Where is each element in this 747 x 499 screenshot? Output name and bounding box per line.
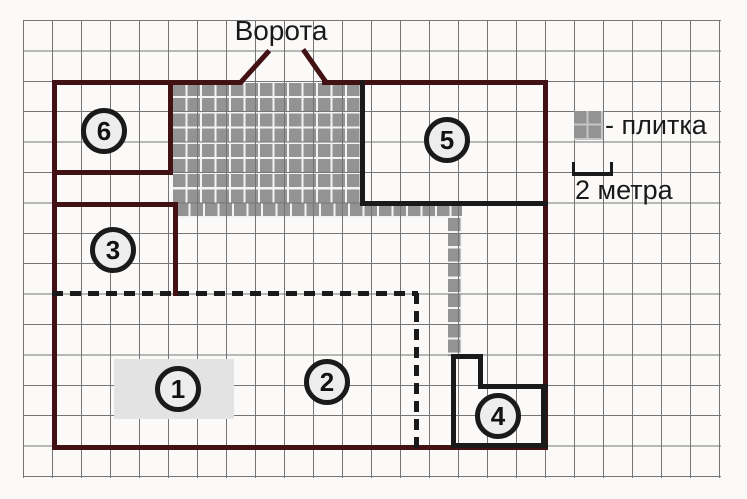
region-1-number: 1 bbox=[171, 374, 185, 405]
scale-bracket-icon bbox=[572, 162, 613, 176]
scale-label: 2 метра bbox=[575, 176, 673, 204]
region-marker-6: 6 bbox=[81, 108, 127, 154]
region-4-wall-right bbox=[541, 384, 547, 448]
region-5-number: 5 bbox=[440, 125, 454, 156]
dashed-boundary-vertical bbox=[414, 293, 419, 448]
tiled-path-vertical bbox=[448, 218, 462, 356]
legend-tile-icon bbox=[574, 111, 603, 140]
region-marker-5: 5 bbox=[424, 117, 470, 163]
region-6-wall-right bbox=[168, 80, 173, 175]
tiled-area-main bbox=[173, 83, 361, 203]
gate-leaf-right bbox=[301, 48, 328, 84]
plot-border-top-right bbox=[322, 80, 548, 85]
region-3-number: 3 bbox=[106, 235, 120, 266]
region-5-wall-left bbox=[360, 80, 365, 206]
dashed-boundary-horizontal bbox=[52, 291, 418, 296]
region-4-wall-step-horizontal bbox=[478, 384, 548, 389]
region-5-wall-bottom bbox=[360, 201, 548, 206]
region-marker-4: 4 bbox=[475, 393, 521, 439]
gate-leaf-left bbox=[238, 49, 271, 85]
plot-border-top-left bbox=[52, 80, 242, 85]
region-6-wall-bottom bbox=[52, 170, 173, 175]
region-4-wall-left bbox=[451, 354, 456, 448]
region-3-wall-top bbox=[52, 202, 178, 207]
region-6-number: 6 bbox=[97, 116, 111, 147]
region-marker-2: 2 bbox=[304, 359, 350, 405]
region-marker-1: 1 bbox=[155, 366, 201, 412]
region-marker-3: 3 bbox=[90, 227, 136, 273]
region-4-number: 4 bbox=[491, 401, 505, 432]
legend-tile-label: - плитка bbox=[605, 110, 707, 140]
region-3-wall-right bbox=[173, 202, 178, 296]
plot-plan-diagram: 1 2 3 4 5 6 Ворота - плитка 2 метра bbox=[0, 0, 747, 499]
gate-label: Ворота bbox=[210, 15, 352, 47]
region-2-number: 2 bbox=[320, 367, 334, 398]
plot-border-left bbox=[52, 80, 57, 450]
region-4-wall-bottom bbox=[451, 443, 548, 448]
